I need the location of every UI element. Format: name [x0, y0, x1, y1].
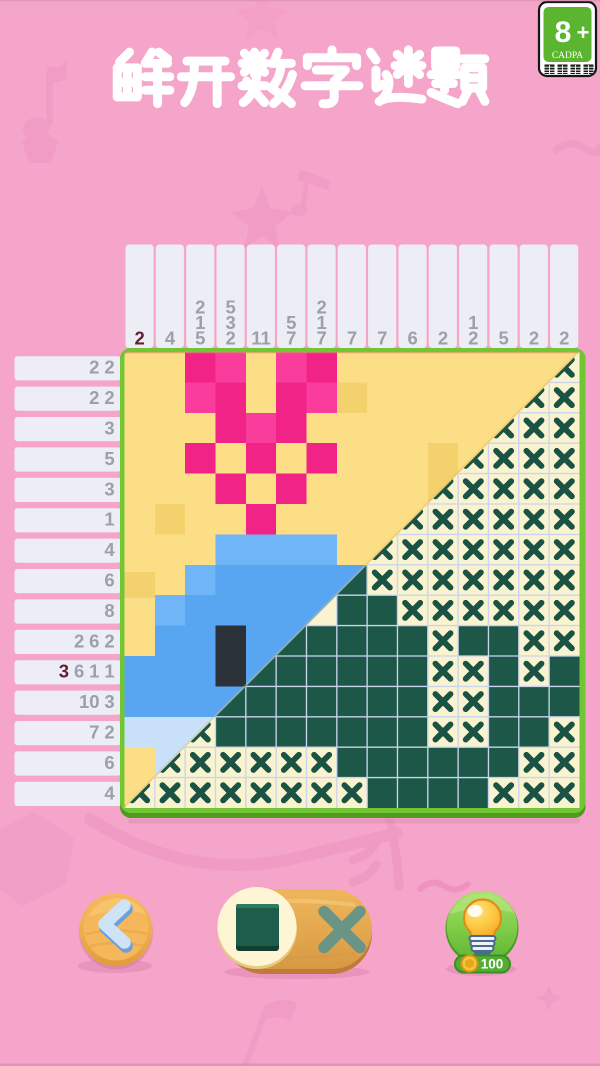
svg-text:6: 6 — [74, 661, 84, 682]
svg-text:2: 2 — [104, 357, 114, 378]
svg-text:8: 8 — [104, 600, 114, 621]
svg-text:2: 2 — [559, 327, 569, 348]
svg-text:3: 3 — [104, 691, 114, 712]
svg-text:1: 1 — [89, 661, 99, 682]
svg-text:2: 2 — [104, 630, 114, 651]
svg-text:6: 6 — [407, 327, 417, 348]
svg-text:2: 2 — [74, 630, 84, 651]
svg-text:2: 2 — [135, 327, 145, 348]
svg-text:11: 11 — [251, 327, 271, 348]
svg-text:5: 5 — [498, 327, 508, 348]
svg-text:100: 100 — [481, 957, 504, 972]
svg-text:6: 6 — [89, 630, 99, 651]
svg-text:2: 2 — [104, 722, 114, 743]
svg-text:3: 3 — [104, 478, 114, 499]
svg-text:10: 10 — [79, 691, 100, 712]
svg-text:2: 2 — [89, 357, 99, 378]
svg-text:8: 8 — [555, 16, 572, 49]
svg-text:1: 1 — [104, 509, 114, 530]
svg-text:3: 3 — [59, 661, 69, 682]
svg-text:7: 7 — [89, 722, 99, 743]
svg-text:1: 1 — [468, 312, 478, 333]
svg-text:2: 2 — [529, 327, 539, 348]
svg-text:3: 3 — [104, 418, 114, 439]
svg-text:2: 2 — [195, 297, 205, 318]
svg-text:5: 5 — [286, 312, 296, 333]
svg-text:5: 5 — [104, 448, 114, 469]
svg-text:2: 2 — [316, 297, 326, 318]
svg-text:6: 6 — [104, 752, 114, 773]
svg-text:5: 5 — [226, 297, 236, 318]
svg-text:6: 6 — [104, 570, 114, 591]
svg-text:1: 1 — [104, 661, 114, 682]
svg-text:CADPA: CADPA — [552, 51, 583, 61]
svg-text:2: 2 — [104, 387, 114, 408]
svg-text:2: 2 — [89, 387, 99, 408]
svg-text:+: + — [577, 20, 590, 45]
svg-text:7: 7 — [377, 327, 387, 348]
svg-text:2: 2 — [438, 327, 448, 348]
svg-text:4: 4 — [104, 539, 115, 560]
svg-text:4: 4 — [104, 782, 115, 803]
svg-text:7: 7 — [347, 327, 357, 348]
svg-text:4: 4 — [165, 327, 176, 348]
